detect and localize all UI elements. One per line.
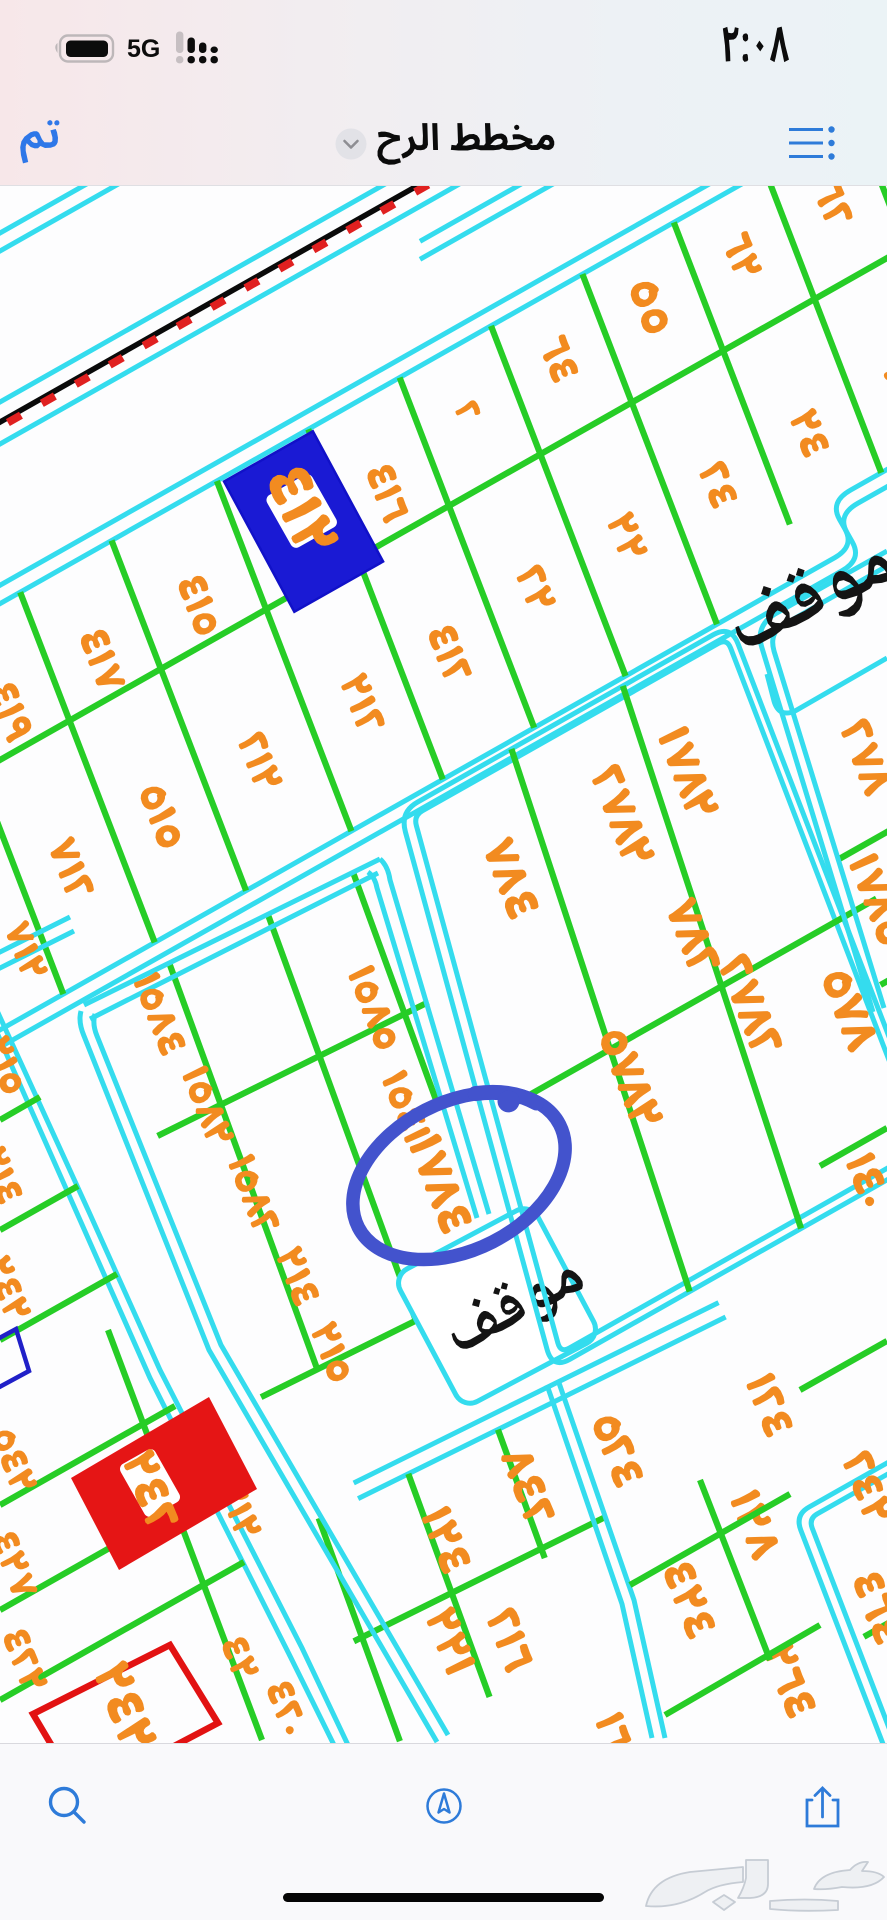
svg-text:5G: 5G [127,35,160,63]
